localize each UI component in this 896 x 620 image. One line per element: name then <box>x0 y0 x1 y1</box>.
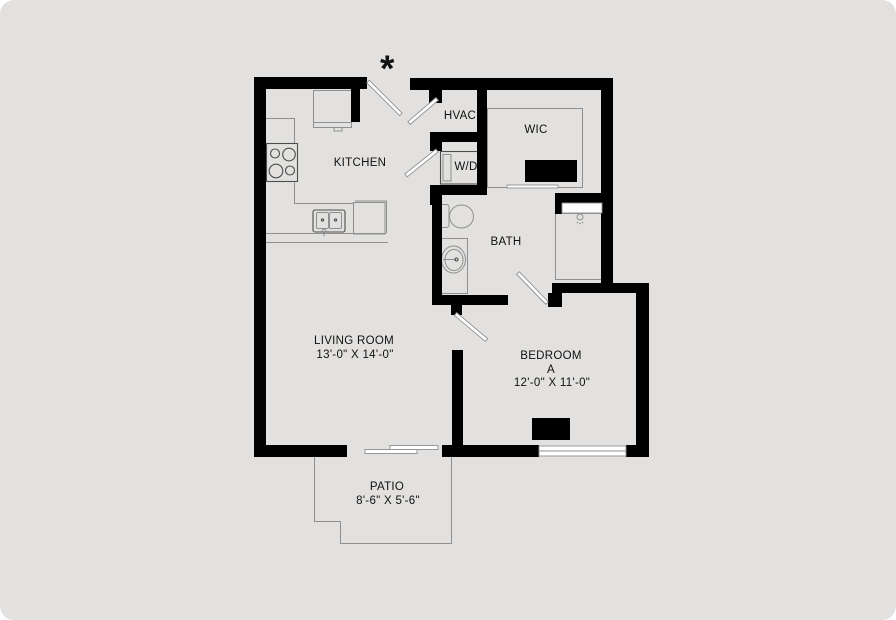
kitchen-counter <box>266 119 388 243</box>
bedroom-window <box>539 446 626 456</box>
asterisk-icon: * <box>380 50 394 87</box>
bathroom-vanity-icon <box>442 239 468 294</box>
room-dimensions-patio: 8'-6" X 5'-6" <box>356 495 420 508</box>
room-label-living-room: LIVING ROOM <box>314 335 394 348</box>
dishwasher-icon <box>354 201 387 234</box>
room-label-bath: BATH <box>490 236 521 249</box>
room-label-patio: PATIO <box>370 481 404 494</box>
patio-sliding-door <box>365 446 438 454</box>
room-label-wd: W/D <box>454 161 477 174</box>
room-label-kitchen: KITCHEN <box>334 157 387 170</box>
wic-door-leaf <box>507 185 558 188</box>
kitchen-sink-icon <box>313 210 345 237</box>
floor-plan: * KITCHEN HVAC WIC W/D BATH LIVING ROOM … <box>0 0 896 620</box>
stove-icon <box>267 144 298 182</box>
room-label-hvac: HVAC <box>444 110 476 123</box>
wic-dresser-block <box>525 160 577 182</box>
room-dimensions-bedroom: 12'-0" X 11'-0" <box>514 377 590 390</box>
floor-plan-drawing <box>0 0 896 620</box>
refrigerator-icon <box>314 91 352 132</box>
room-dimensions-living-room: 13'-0" X 14'-0" <box>316 349 393 362</box>
bedroom-door-leaf <box>454 313 487 342</box>
shower-icon <box>556 211 602 279</box>
bedroom-nightstand-block <box>532 418 570 440</box>
toilet-icon <box>439 205 474 229</box>
linen-niche <box>562 203 602 213</box>
room-label-bedroom: BEDROOM <box>520 350 582 363</box>
room-unit-bedroom: A <box>547 364 555 377</box>
bath-door-leaf <box>517 272 549 305</box>
wd-door-leaf <box>405 149 438 177</box>
room-label-wic: WIC <box>524 124 547 137</box>
hvac-door-leaf <box>408 98 438 125</box>
walls-layer <box>254 77 649 457</box>
